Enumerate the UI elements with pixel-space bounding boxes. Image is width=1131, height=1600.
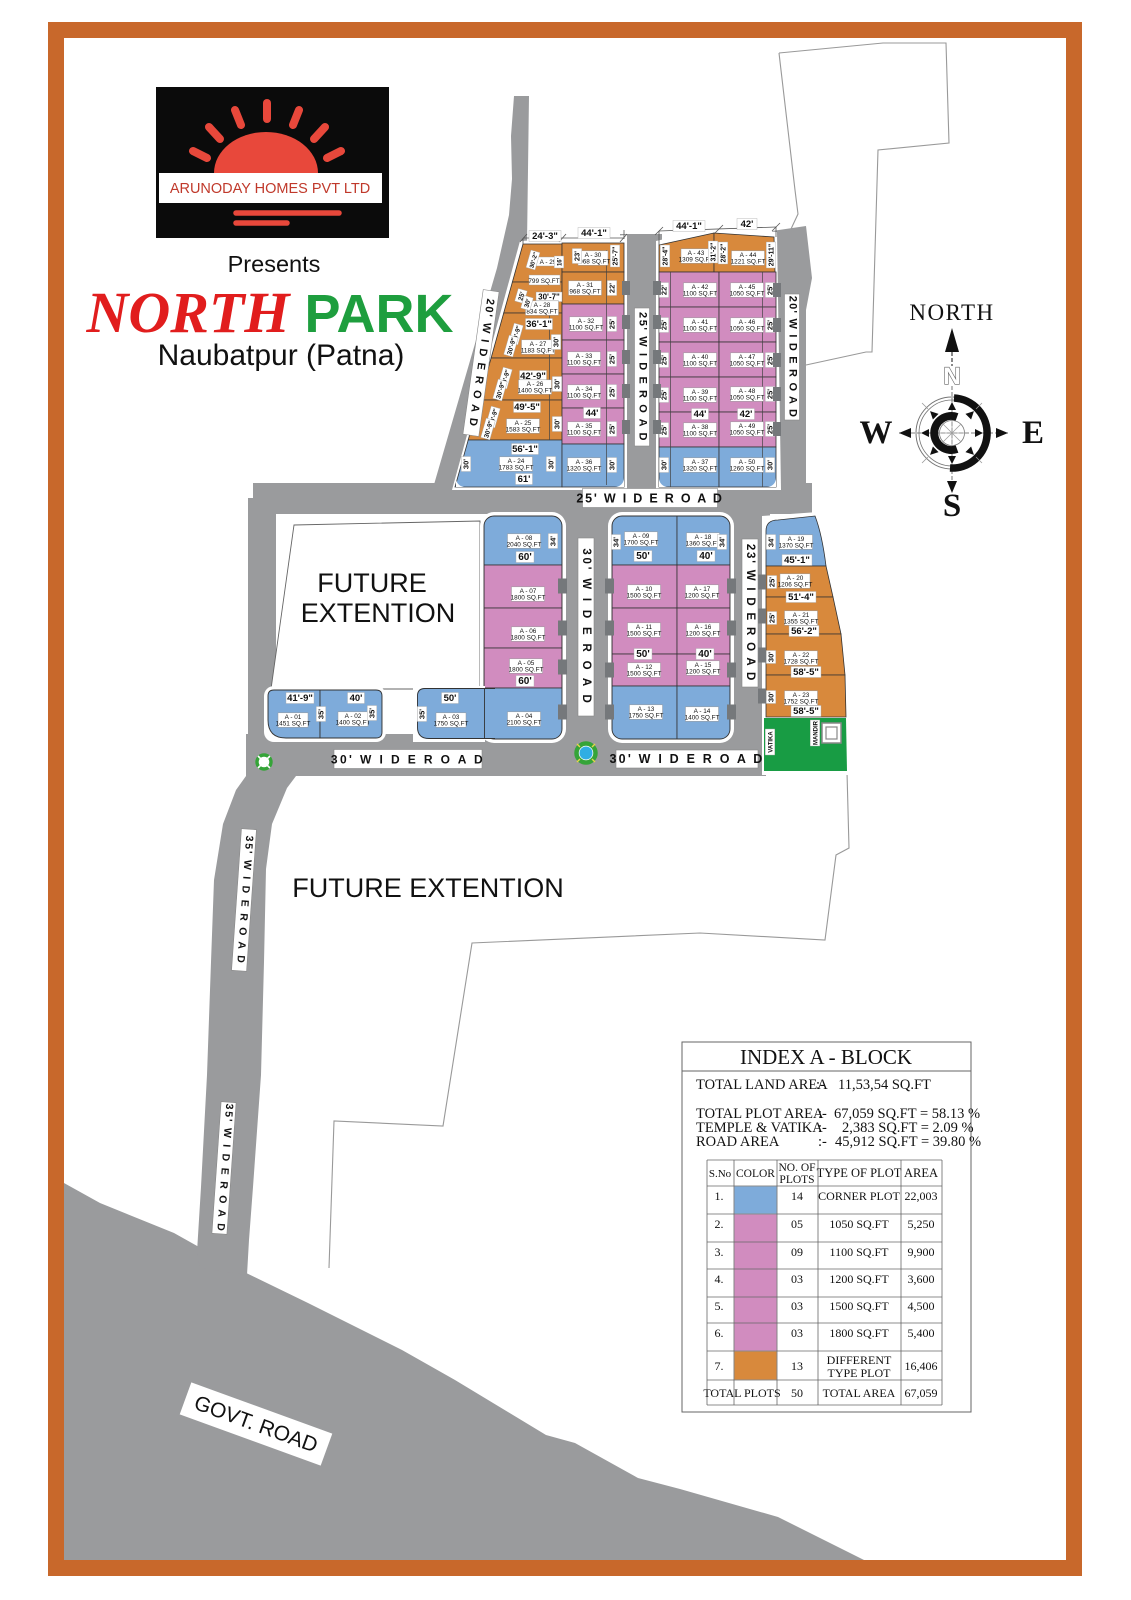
svg-text:29'-11": 29'-11": [769, 244, 776, 267]
svg-text:N: N: [943, 363, 960, 390]
svg-text:1700 SQ.FT: 1700 SQ.FT: [624, 539, 659, 546]
svg-text:1100 SQ.FT: 1100 SQ.FT: [683, 395, 717, 402]
svg-text:1583 SQ.FT: 1583 SQ.FT: [506, 426, 541, 433]
svg-text:03: 03: [791, 1299, 803, 1313]
svg-text:1500 SQ.FT: 1500 SQ.FT: [627, 630, 662, 637]
svg-text:25' W I D E R O A D: 25' W I D E R O A D: [637, 312, 649, 442]
svg-text:Presents: Presents: [228, 251, 321, 277]
svg-text:NO. OF: NO. OF: [778, 1162, 815, 1174]
svg-text:FUTURE EXTENTION: FUTURE EXTENTION: [292, 873, 564, 903]
svg-text:05: 05: [791, 1217, 803, 1231]
svg-text:42': 42': [741, 219, 754, 230]
svg-text:30': 30': [553, 419, 562, 429]
svg-text:45,912 SQ.FT = 39.80 %: 45,912 SQ.FT = 39.80 %: [835, 1134, 981, 1150]
svg-text:30' W I D E R O A D: 30' W I D E R O A D: [331, 752, 485, 766]
svg-text:1750 SQ.FT: 1750 SQ.FT: [434, 720, 469, 727]
svg-text:1050 SQ.FT: 1050 SQ.FT: [730, 394, 765, 401]
svg-text:CORNER PLOT: CORNER PLOT: [818, 1189, 900, 1203]
svg-text:28'-4": 28'-4": [663, 247, 670, 266]
svg-text:1100 SQ.FT: 1100 SQ.FT: [567, 392, 601, 399]
svg-text:1728 SQ.FT: 1728 SQ.FT: [784, 658, 819, 665]
svg-text:1800 SQ.FT: 1800 SQ.FT: [509, 666, 544, 673]
svg-text:16,406: 16,406: [905, 1359, 938, 1373]
svg-text:11,53,54 SQ.FT: 11,53,54 SQ.FT: [838, 1077, 931, 1093]
svg-text:1500 SQ.FT: 1500 SQ.FT: [829, 1299, 889, 1313]
svg-text:1050 SQ.FT: 1050 SQ.FT: [730, 325, 765, 332]
svg-text:799 SQ.FT: 799 SQ.FT: [528, 278, 559, 285]
svg-text:1100 SQ.FT: 1100 SQ.FT: [683, 290, 717, 297]
svg-text:ROAD AREA: ROAD AREA: [696, 1134, 780, 1150]
svg-text:1100 SQ.FT: 1100 SQ.FT: [567, 359, 601, 366]
svg-text:49'-5": 49'-5": [514, 402, 540, 413]
svg-text:30': 30': [552, 337, 561, 347]
svg-text:24'-3": 24'-3": [532, 231, 558, 242]
svg-text:NORTH: NORTH: [909, 300, 994, 325]
svg-text:1200 SQ.FT: 1200 SQ.FT: [685, 592, 720, 599]
svg-text:1050 SQ.FT: 1050 SQ.FT: [730, 429, 765, 436]
svg-text:Naubatpur (Patna): Naubatpur (Patna): [158, 339, 405, 372]
svg-text:4,500: 4,500: [908, 1299, 935, 1313]
svg-text:1800 SQ.FT: 1800 SQ.FT: [511, 594, 546, 601]
svg-text:FUTURE: FUTURE: [317, 568, 427, 598]
svg-text:5,250: 5,250: [908, 1217, 935, 1231]
svg-text:50': 50': [444, 693, 457, 704]
svg-text:44': 44': [586, 408, 599, 419]
svg-text:1100 SQ.FT: 1100 SQ.FT: [683, 360, 717, 367]
svg-text:40': 40': [350, 693, 363, 704]
svg-text:1451 SQ.FT: 1451 SQ.FT: [276, 720, 311, 727]
svg-text:40': 40': [698, 649, 712, 660]
svg-text:1400 SQ.FT: 1400 SQ.FT: [518, 387, 553, 394]
svg-text:35': 35': [418, 709, 427, 719]
svg-text:1370 SQ.FT: 1370 SQ.FT: [779, 542, 814, 549]
svg-text:INDEX A - BLOCK: INDEX A - BLOCK: [740, 1045, 912, 1069]
svg-text:42': 42': [740, 409, 753, 420]
svg-text:1183 SQ.FT: 1183 SQ.FT: [521, 347, 555, 354]
svg-text:61': 61': [518, 474, 531, 485]
svg-text:1320 SQ.FT: 1320 SQ.FT: [567, 465, 602, 472]
svg-text:13: 13: [791, 1359, 803, 1373]
svg-text:31'-2": 31'-2": [711, 243, 718, 262]
svg-text:30': 30': [608, 460, 617, 470]
svg-text:60': 60': [518, 676, 532, 687]
svg-text:35': 35': [317, 709, 326, 719]
svg-text:E: E: [1022, 415, 1044, 451]
svg-text:50': 50': [636, 649, 650, 660]
svg-text:20' W I D E R O A D: 20' W I D E R O A D: [787, 296, 799, 418]
svg-text:30': 30': [767, 652, 776, 662]
svg-text:1320 SQ.FT: 1320 SQ.FT: [683, 465, 718, 472]
svg-text:25': 25': [768, 577, 777, 587]
svg-text:834 SQ.FT: 834 SQ.FT: [526, 308, 557, 315]
svg-text:1400 SQ.FT: 1400 SQ.FT: [336, 719, 371, 726]
svg-text:40': 40': [699, 551, 713, 562]
svg-text:NORTH PARK: NORTH PARK: [85, 280, 453, 345]
svg-text:1260 SQ.FT: 1260 SQ.FT: [730, 465, 765, 472]
svg-text:2100 SQ.FT: 2100 SQ.FT: [507, 719, 542, 726]
svg-text:MANDIR: MANDIR: [814, 720, 820, 745]
svg-text:44'-1": 44'-1": [676, 221, 702, 232]
svg-text:30': 30': [462, 459, 471, 469]
svg-text:1800 SQ.FT: 1800 SQ.FT: [511, 634, 546, 641]
svg-text:45'-1": 45'-1": [784, 555, 810, 566]
svg-text::-: :-: [816, 1077, 825, 1093]
svg-text:1100 SQ.FT: 1100 SQ.FT: [683, 325, 717, 332]
svg-text:AREA: AREA: [904, 1166, 938, 1180]
svg-text:1050 SQ.FT: 1050 SQ.FT: [829, 1217, 889, 1231]
svg-text:30': 30': [660, 460, 669, 470]
svg-text:5.: 5.: [715, 1299, 724, 1313]
svg-text:TYPE PLOT: TYPE PLOT: [828, 1366, 892, 1380]
svg-text:1360 SQ.FT: 1360 SQ.FT: [686, 540, 721, 547]
svg-text:1750 SQ.FT: 1750 SQ.FT: [629, 712, 664, 719]
svg-text:41'-9": 41'-9": [287, 693, 313, 704]
svg-text:25': 25': [608, 387, 617, 397]
svg-text:1100 SQ.FT: 1100 SQ.FT: [830, 1245, 890, 1259]
svg-text:30': 30': [547, 459, 556, 469]
svg-text:5,400: 5,400: [908, 1326, 935, 1340]
svg-text:60': 60': [518, 552, 532, 563]
svg-text:51'-4": 51'-4": [788, 592, 814, 603]
svg-text:56'-2": 56'-2": [791, 626, 817, 637]
svg-text:1355 SQ.FT: 1355 SQ.FT: [784, 618, 819, 625]
svg-text:1.: 1.: [715, 1189, 724, 1203]
svg-text:DIFFERENT: DIFFERENT: [827, 1353, 892, 1367]
svg-text:34': 34': [612, 537, 621, 547]
svg-text:6.: 6.: [715, 1326, 724, 1340]
svg-text:1100 SQ.FT: 1100 SQ.FT: [569, 324, 603, 331]
svg-text:16': 16': [558, 257, 564, 266]
svg-text:W: W: [860, 415, 893, 451]
svg-text:S: S: [943, 488, 961, 524]
svg-text:S.No: S.No: [709, 1168, 732, 1180]
svg-text:30'-7": 30'-7": [538, 293, 560, 302]
svg-text:1100 SQ.FT: 1100 SQ.FT: [567, 429, 601, 436]
svg-text:34': 34': [718, 537, 727, 547]
svg-text:34': 34': [767, 537, 776, 547]
svg-text:44'-1": 44'-1": [581, 228, 607, 239]
svg-text:03: 03: [791, 1272, 803, 1286]
svg-text:25'-7": 25'-7": [613, 247, 620, 266]
svg-text:30': 30': [553, 379, 562, 389]
svg-text:22': 22': [608, 283, 617, 293]
svg-text:30': 30': [766, 460, 775, 470]
svg-text:1050 SQ.FT: 1050 SQ.FT: [730, 360, 765, 367]
svg-text:09: 09: [791, 1245, 803, 1259]
svg-text:4.: 4.: [715, 1272, 724, 1286]
svg-text:36'-1": 36'-1": [526, 319, 552, 330]
svg-text:50': 50': [636, 551, 650, 562]
svg-text:50: 50: [791, 1386, 803, 1400]
svg-text:58'-5": 58'-5": [793, 706, 819, 717]
svg-text:VATIKA: VATIKA: [769, 731, 775, 753]
svg-text:28'-2": 28'-2": [721, 244, 728, 263]
svg-text:25': 25': [608, 319, 617, 329]
svg-text:TOTAL PLOTS: TOTAL PLOTS: [703, 1386, 780, 1400]
svg-text:1500 SQ.FT: 1500 SQ.FT: [627, 670, 662, 677]
svg-text:58'-5": 58'-5": [793, 667, 819, 678]
svg-text:1783 SQ.FT: 1783 SQ.FT: [499, 464, 534, 471]
svg-text:14: 14: [791, 1189, 803, 1203]
svg-text:1800 SQ.FT: 1800 SQ.FT: [829, 1326, 889, 1340]
svg-text:03: 03: [791, 1326, 803, 1340]
svg-text:30' W I D E R O A D: 30' W I D E R O A D: [580, 548, 592, 705]
svg-text:2.: 2.: [715, 1217, 724, 1231]
svg-text:ARUNODAY HOMES PVT LTD: ARUNODAY HOMES PVT LTD: [170, 181, 370, 197]
svg-text:1200 SQ.FT: 1200 SQ.FT: [829, 1272, 889, 1286]
svg-text:44': 44': [694, 409, 707, 420]
svg-text:PLOTS: PLOTS: [779, 1174, 814, 1186]
svg-text:1200 SQ.FT: 1200 SQ.FT: [686, 630, 721, 637]
svg-text:25': 25': [608, 354, 617, 364]
svg-text:1400 SQ.FT: 1400 SQ.FT: [685, 714, 720, 721]
svg-text:3.: 3.: [715, 1245, 724, 1259]
svg-text::-: :-: [818, 1134, 827, 1150]
svg-text:25': 25': [608, 424, 617, 434]
svg-text:7.: 7.: [715, 1359, 724, 1373]
svg-text:34': 34': [549, 536, 558, 546]
svg-text:1200 SQ.FT: 1200 SQ.FT: [686, 668, 721, 675]
svg-text:TOTAL AREA: TOTAL AREA: [823, 1386, 896, 1400]
svg-text:COLOR: COLOR: [736, 1168, 775, 1180]
svg-text:67,059: 67,059: [905, 1386, 938, 1400]
svg-text:1206 SQ.FT: 1206 SQ.FT: [778, 581, 813, 588]
svg-text:TOTAL LAND AREA: TOTAL LAND AREA: [696, 1077, 828, 1093]
svg-text:25': 25': [768, 613, 777, 623]
svg-text:1100 SQ.FT: 1100 SQ.FT: [683, 430, 717, 437]
svg-text:968 SQ.FT: 968 SQ.FT: [569, 288, 600, 295]
svg-text:35': 35': [368, 708, 377, 718]
svg-text:3,600: 3,600: [908, 1272, 935, 1286]
svg-text:EXTENTION: EXTENTION: [301, 598, 456, 628]
svg-text:30' W I D E R O A D: 30' W I D E R O A D: [610, 752, 765, 766]
svg-text:23' W I D E R O A D: 23' W I D E R O A D: [744, 544, 756, 682]
svg-text:9,900: 9,900: [908, 1245, 935, 1259]
svg-text:1221 SQ.FT: 1221 SQ.FT: [731, 258, 766, 265]
svg-text:25' W I D E R O A D: 25' W I D E R O A D: [576, 491, 723, 505]
svg-text:22,003: 22,003: [905, 1189, 938, 1203]
svg-text:30': 30': [767, 692, 776, 702]
svg-text:1500 SQ.FT: 1500 SQ.FT: [627, 592, 662, 599]
svg-text:2040 SQ.FT: 2040 SQ.FT: [507, 541, 542, 548]
svg-text:1752 SQ.FT: 1752 SQ.FT: [784, 698, 819, 705]
svg-text:1050 SQ.FT: 1050 SQ.FT: [730, 290, 765, 297]
svg-text:23': 23': [573, 251, 582, 261]
svg-text:TYPE OF PLOT: TYPE OF PLOT: [817, 1166, 902, 1180]
svg-text:56'-1": 56'-1": [512, 444, 538, 455]
